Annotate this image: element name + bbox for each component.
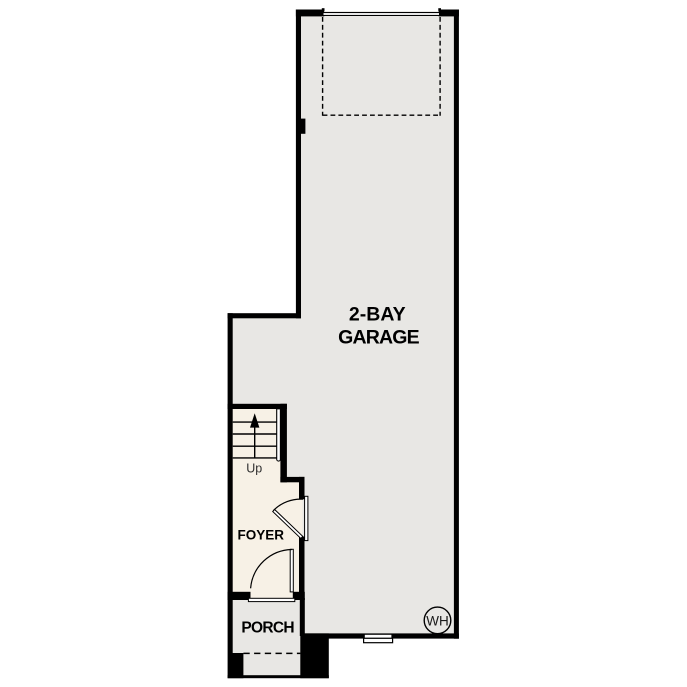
svg-text:Up: Up xyxy=(246,462,262,476)
svg-text:WH: WH xyxy=(426,613,449,628)
svg-text:GARAGE: GARAGE xyxy=(338,326,420,348)
svg-text:FOYER: FOYER xyxy=(238,527,285,542)
svg-text:2-BAY: 2-BAY xyxy=(349,304,406,326)
svg-text:PORCH: PORCH xyxy=(241,619,294,636)
